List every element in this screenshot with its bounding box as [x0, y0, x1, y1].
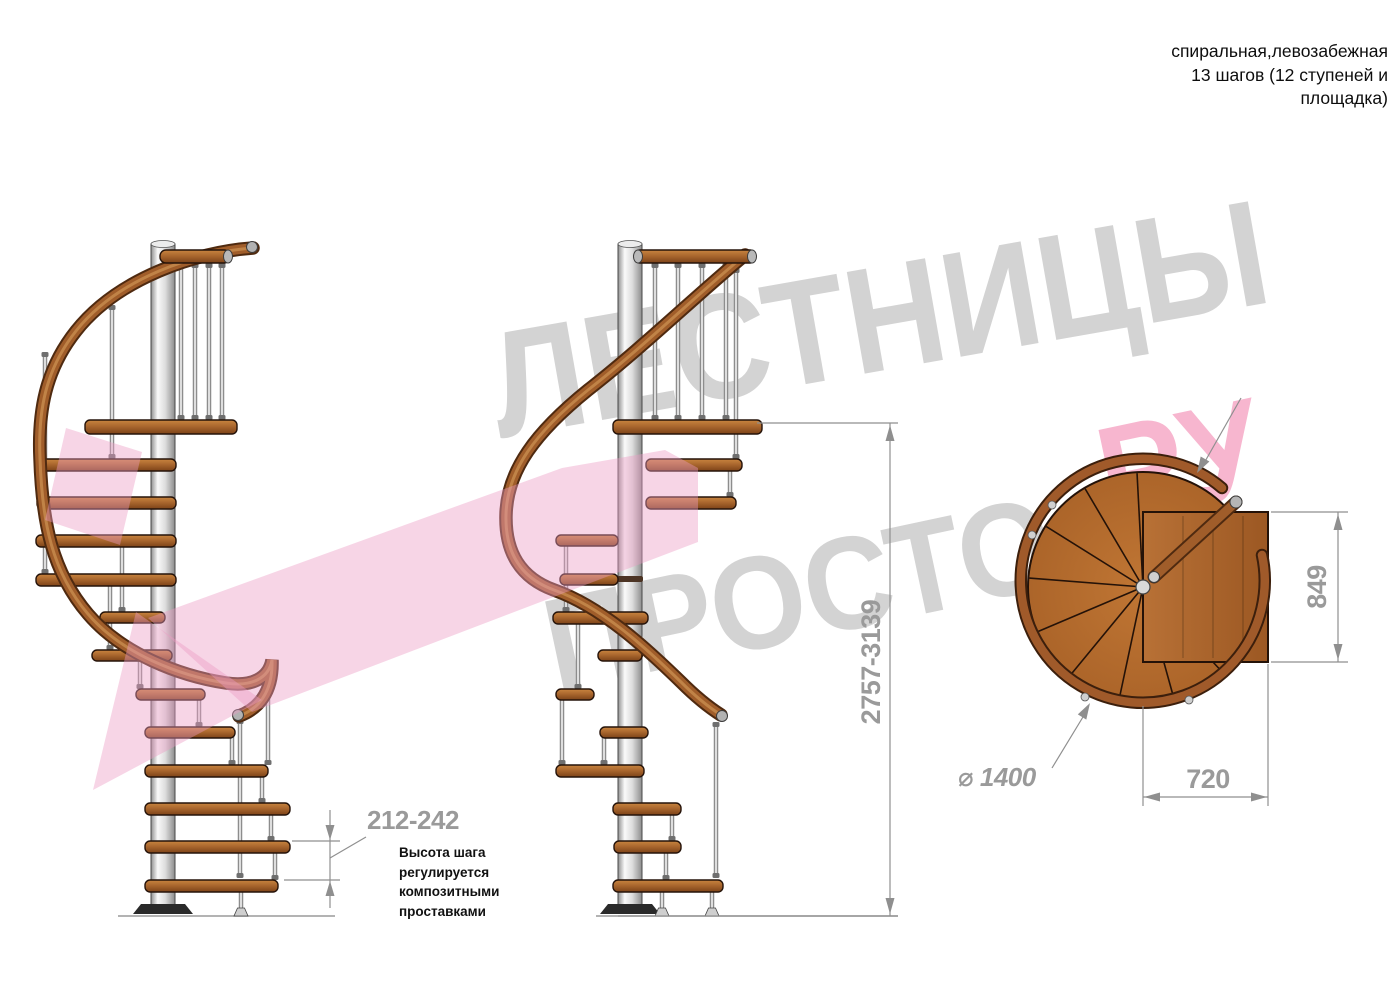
baluster-top-dot	[1081, 693, 1089, 701]
rod-collar	[206, 415, 213, 420]
rod-collar	[652, 415, 659, 420]
rod-collar	[727, 492, 734, 497]
tread	[556, 689, 594, 700]
staircase-drawing: ЛЕСТНИЦЫ ПРОСТО .РУ	[0, 0, 1400, 1000]
baluster-top-dot	[1028, 531, 1036, 539]
rod-collar	[713, 722, 720, 727]
rod-collar	[575, 684, 582, 689]
rod-collar	[272, 875, 279, 880]
tread	[600, 727, 648, 738]
platform-width-label: 720	[1167, 764, 1249, 795]
rod-collar	[669, 836, 676, 841]
rod-collar	[192, 415, 199, 420]
rod-collar	[652, 263, 659, 268]
rod-collar	[42, 569, 49, 574]
tread	[145, 765, 268, 777]
rod-collar	[237, 873, 244, 878]
baluster-top-dot	[1185, 696, 1193, 704]
annotation-line2: 13 шагов (12 ступеней и	[1068, 64, 1388, 88]
tread	[613, 880, 723, 892]
note-line1: Высота шага	[399, 843, 499, 863]
tread	[145, 880, 278, 892]
rail-end-cap	[1230, 496, 1242, 508]
rear-tread-collar	[617, 576, 643, 582]
tread	[556, 765, 644, 777]
rod-collar	[107, 645, 114, 650]
rail-end-cap	[247, 242, 258, 253]
pole-top	[618, 241, 642, 248]
rod-collar	[265, 760, 272, 765]
rod-collar	[563, 607, 570, 612]
pole-top	[151, 241, 175, 248]
tread	[613, 420, 762, 434]
rod-collar	[219, 263, 226, 268]
note-line4: проставками	[399, 902, 499, 922]
rod-collar	[559, 760, 566, 765]
annotation-line1: спиральная,левозабежная	[1068, 40, 1388, 64]
rod-collar	[206, 263, 213, 268]
rod-collar	[675, 263, 682, 268]
tread	[85, 420, 237, 434]
dimension-step-height	[284, 810, 366, 908]
rail-end-cap	[634, 250, 643, 263]
baluster-top-dot	[1048, 501, 1056, 509]
rail-ball-joint	[1149, 572, 1160, 583]
platform-depth-label: 849	[1302, 552, 1332, 622]
tread	[145, 841, 290, 853]
rod-collar	[713, 873, 720, 878]
rail-end-cap	[224, 250, 233, 263]
title-annotation: спиральная,левозабежная 13 шагов (12 сту…	[1068, 40, 1388, 111]
base-flange	[133, 904, 193, 914]
top-handrail-bar	[160, 250, 230, 263]
total-height-label: 2757-3139	[856, 592, 886, 732]
note-line2: регулируется	[399, 863, 499, 883]
baluster-foot	[705, 908, 719, 916]
annotation-line3: площадка)	[1068, 87, 1388, 111]
rod-collar	[663, 875, 670, 880]
rail-end-cap	[717, 711, 728, 722]
rod-collar	[601, 760, 608, 765]
rod-collar	[229, 760, 236, 765]
top-handrail-bar	[634, 250, 756, 263]
baluster-foot	[234, 908, 248, 916]
rail-end-cap	[748, 250, 757, 263]
diameter-label: ⌀ 1400	[958, 762, 1036, 793]
rod-collar	[219, 415, 226, 420]
arrow-fragment	[45, 428, 142, 545]
tread	[145, 803, 290, 815]
rod-collar	[268, 836, 275, 841]
tread	[614, 841, 681, 853]
rod-collar	[723, 415, 730, 420]
tread	[613, 803, 681, 815]
rod-collar	[42, 352, 49, 357]
rod-collar	[119, 607, 126, 612]
rod-collar	[733, 454, 740, 459]
rod-collar	[259, 798, 266, 803]
rod-collar	[178, 415, 185, 420]
note-line3: композитными	[399, 882, 499, 902]
rod-collar	[699, 415, 706, 420]
rod-collar	[675, 415, 682, 420]
tread	[598, 650, 642, 661]
step-height-label: 212-242	[367, 805, 459, 836]
step-height-note: Высота шага регулируется композитными пр…	[399, 843, 499, 921]
baluster-foot	[655, 908, 669, 916]
drawing-canvas: ЛЕСТНИЦЫ ПРОСТО .РУ	[0, 0, 1400, 1000]
base-flange	[600, 904, 660, 914]
center-pole-top	[1136, 580, 1150, 594]
rod-collar	[699, 263, 706, 268]
